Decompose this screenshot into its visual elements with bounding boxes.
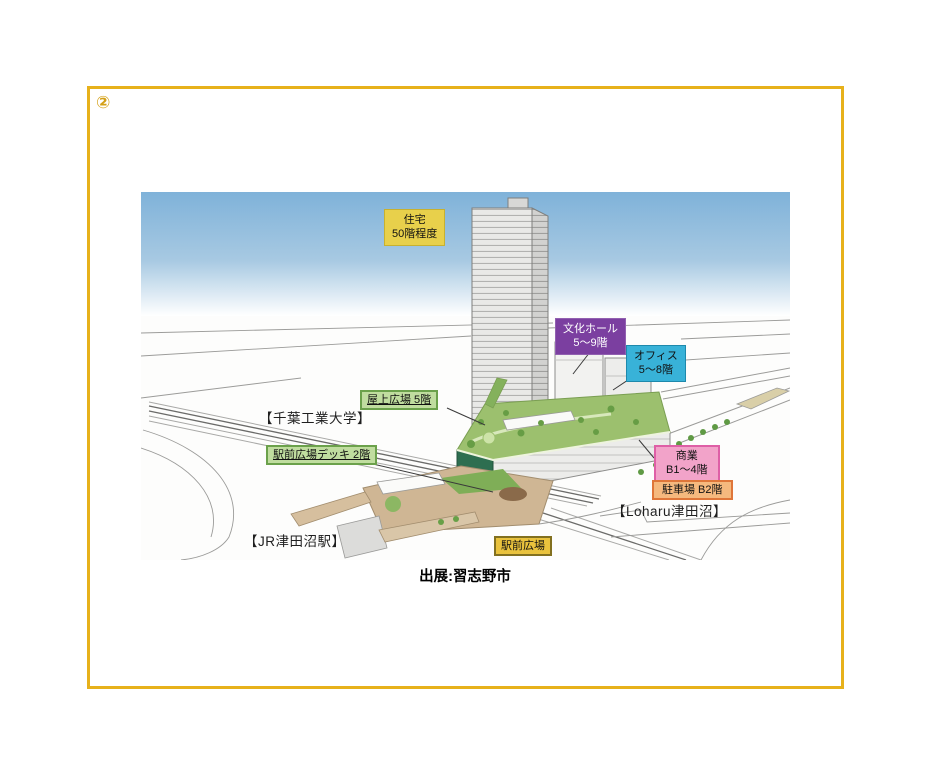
tower-roof-box bbox=[508, 198, 528, 209]
page-number-marker: ② bbox=[96, 93, 110, 113]
label-culture-hall-line2: 5〜9階 bbox=[563, 336, 618, 350]
label-commercial: 商業 B1〜4階 bbox=[654, 445, 720, 482]
rendering-figure: 住宅 50階程度 文化ホール 5〜9階 オフィス 5〜8階 屋上広場 5階 駅前… bbox=[141, 192, 790, 560]
landmark-jr-tsudanuma-station: 【JR津田沼駅】 bbox=[244, 530, 346, 550]
sky bbox=[141, 192, 790, 316]
label-rooftop-plaza: 屋上広場 5階 bbox=[360, 390, 438, 410]
figure-caption: 出展:習志野市 bbox=[0, 565, 930, 586]
label-housing-line1: 住宅 bbox=[392, 213, 437, 227]
label-office-line1: オフィス bbox=[634, 349, 678, 363]
deck-lawn-circle bbox=[385, 496, 401, 512]
label-station-plaza: 駅前広場 bbox=[494, 536, 552, 556]
label-commercial-line1: 商業 bbox=[666, 449, 708, 463]
label-culture-hall: 文化ホール 5〜9階 bbox=[555, 318, 626, 355]
label-commercial-line2: B1〜4階 bbox=[666, 463, 708, 477]
label-parking: 駐車場 B2階 bbox=[652, 480, 733, 500]
label-office-line2: 5〜8階 bbox=[634, 363, 678, 377]
label-station-deck: 駅前広場デッキ 2階 bbox=[266, 445, 377, 465]
label-housing-line2: 50階程度 bbox=[392, 227, 437, 241]
deck-brown-patch bbox=[499, 487, 527, 501]
landmark-chiba-institute: 【千葉工業大学】 bbox=[259, 407, 371, 427]
landmark-loharu-tsudanuma: 【Loharu津田沼】 bbox=[612, 500, 727, 520]
label-housing: 住宅 50階程度 bbox=[384, 209, 445, 246]
tower-front-face bbox=[472, 208, 532, 434]
label-culture-hall-line1: 文化ホール bbox=[563, 322, 618, 336]
label-office: オフィス 5〜8階 bbox=[626, 345, 686, 382]
